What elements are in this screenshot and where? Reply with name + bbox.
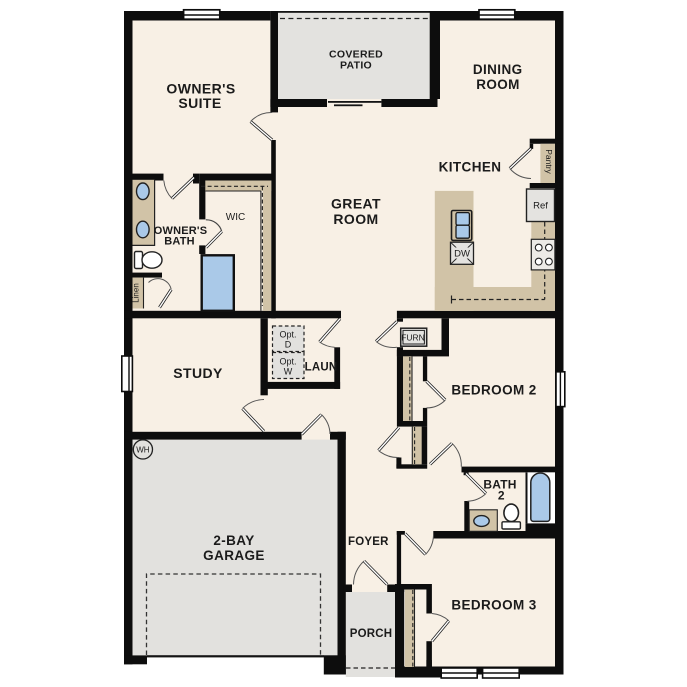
svg-text:Pantry: Pantry [544, 149, 554, 174]
svg-text:WH: WH [136, 446, 150, 455]
svg-text:DINING: DINING [473, 62, 523, 77]
svg-text:Linen: Linen [131, 283, 140, 303]
svg-text:STUDY: STUDY [173, 365, 223, 381]
svg-text:DW: DW [454, 249, 470, 260]
svg-text:LAUN: LAUN [305, 361, 338, 373]
svg-text:ROOM: ROOM [476, 77, 520, 92]
svg-text:GARAGE: GARAGE [203, 548, 265, 563]
svg-text:Opt.: Opt. [279, 357, 296, 367]
svg-text:SUITE: SUITE [178, 95, 221, 111]
svg-text:W: W [284, 367, 293, 377]
svg-text:OWNER'S: OWNER'S [166, 80, 235, 96]
svg-text:FURN: FURN [401, 333, 425, 343]
svg-text:COVERED: COVERED [329, 48, 383, 60]
svg-text:KITCHEN: KITCHEN [439, 160, 502, 175]
svg-text:GREAT: GREAT [331, 196, 381, 212]
svg-text:WIC: WIC [226, 212, 245, 223]
svg-text:2: 2 [498, 488, 505, 502]
svg-text:D: D [285, 340, 292, 350]
svg-text:2-BAY: 2-BAY [213, 533, 254, 548]
svg-text:Opt.: Opt. [279, 330, 296, 340]
svg-text:BEDROOM 2: BEDROOM 2 [451, 383, 536, 398]
svg-text:FOYER: FOYER [348, 536, 389, 548]
svg-text:PATIO: PATIO [340, 60, 372, 72]
svg-text:PORCH: PORCH [350, 628, 393, 640]
svg-text:ROOM: ROOM [333, 211, 378, 227]
svg-text:BEDROOM 3: BEDROOM 3 [451, 598, 536, 613]
svg-text:BATH: BATH [164, 236, 195, 248]
svg-text:Ref: Ref [533, 201, 548, 212]
